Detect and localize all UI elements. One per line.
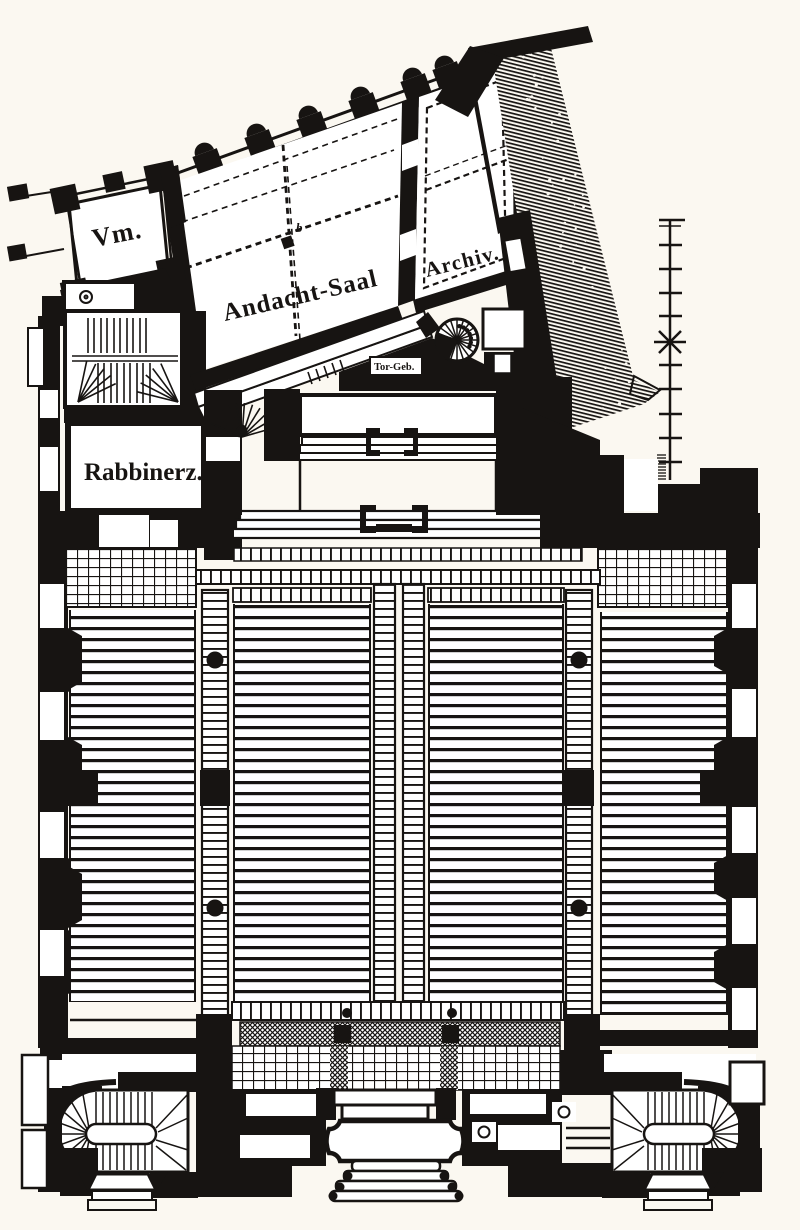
svg-text:Tor-Geb.: Tor-Geb. bbox=[374, 362, 415, 373]
svg-text:b: b bbox=[296, 220, 303, 235]
svg-text:Rabbinerz.: Rabbinerz. bbox=[84, 459, 203, 486]
